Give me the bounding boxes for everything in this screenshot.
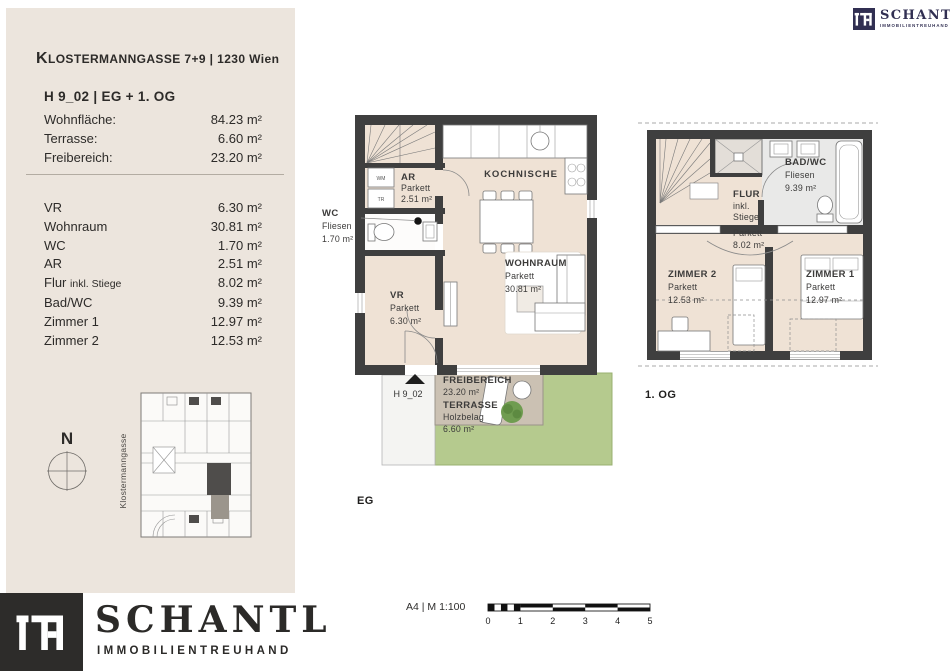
room-row: AR2.51 m² xyxy=(44,255,262,274)
summary-label: Wohnfläche: xyxy=(44,111,116,130)
svg-text:23.20 m²: 23.20 m² xyxy=(443,387,479,397)
room-row: VR6.30 m² xyxy=(44,199,262,218)
unit-number-label: H 9_02 xyxy=(393,389,422,399)
svg-text:Parkett: Parkett xyxy=(806,282,836,292)
room-label: Flur xyxy=(44,275,66,290)
summary-value: 84.23 m² xyxy=(211,111,262,130)
room-row: Zimmer 112.97 m² xyxy=(44,313,262,332)
svg-text:ZIMMER 2: ZIMMER 2 xyxy=(668,269,717,280)
sofa-chaise xyxy=(535,303,585,331)
bath-sink xyxy=(797,141,819,157)
area-summary: Wohnfläche: 84.23 m² Terrasse: 6.60 m² F… xyxy=(44,111,262,167)
company-name: SCHANTL xyxy=(880,8,950,23)
scale-tick: 1 xyxy=(518,616,523,626)
summary-value: 23.20 m² xyxy=(211,149,262,168)
cooktop xyxy=(565,158,587,194)
svg-text:8.02 m²: 8.02 m² xyxy=(733,240,764,250)
svg-text:Fliesen: Fliesen xyxy=(322,221,352,231)
scale-label: A4 | M 1:100 xyxy=(406,601,465,613)
svg-text:WC: WC xyxy=(322,208,339,219)
svg-text:FREIBEREICH: FREIBEREICH xyxy=(443,375,512,386)
tr-label: TR xyxy=(378,197,385,203)
room-value: 12.97 m² xyxy=(211,313,262,332)
room-label: VR xyxy=(44,200,62,215)
svg-text:ZIMMER 1: ZIMMER 1 xyxy=(806,269,855,280)
svg-text:TERRASSE: TERRASSE xyxy=(443,400,498,411)
svg-text:WOHNRAUM: WOHNRAUM xyxy=(505,258,567,269)
company-logo-top: SCHANTL IMMOBILIENTREUHAND xyxy=(853,8,950,30)
svg-text:Stiege: Stiege xyxy=(733,212,759,222)
svg-text:Parkett: Parkett xyxy=(390,303,420,313)
room-value: 9.39 m² xyxy=(218,294,262,313)
summary-row: Terrasse: 6.60 m² xyxy=(44,130,262,149)
room-row: WC1.70 m² xyxy=(44,237,262,256)
toilet xyxy=(374,224,394,241)
kochnische-label: KOCHNISCHE xyxy=(484,169,558,180)
svg-text:BAD/WC: BAD/WC xyxy=(785,157,826,168)
eg-floor-label: EG xyxy=(357,495,374,507)
svg-text:Holzbelag: Holzbelag xyxy=(443,412,484,422)
terrace-door-opening xyxy=(457,365,540,375)
room-row: Flur inkl. Stiege8.02 m² xyxy=(44,274,262,294)
svg-text:2.51 m²: 2.51 m² xyxy=(401,194,432,204)
room-value: 2.51 m² xyxy=(218,255,262,274)
info-sidebar: KLOSTERMANNGASSE 7+9 | 1230 Wien H 9_02 … xyxy=(6,8,295,593)
wm-label: WM xyxy=(377,176,386,182)
company-subtitle: IMMOBILIENTREUHAND xyxy=(880,23,950,28)
ith-mark-icon-footer xyxy=(0,593,83,671)
entry-door-opening xyxy=(405,365,437,375)
window xyxy=(680,352,730,360)
summary-row: Freibereich: 23.20 m² xyxy=(44,149,262,168)
dining-table xyxy=(480,200,533,243)
toilet-og xyxy=(818,196,833,214)
floorplan-sheet: KLOSTERMANNGASSE 7+9 | 1230 Wien H 9_02 … xyxy=(0,0,950,671)
svg-text:6.60 m²: 6.60 m² xyxy=(443,424,474,434)
floorplan-og: BAD/WC Fliesen 9.39 m² FLUR inkl. Stiege… xyxy=(630,105,950,405)
svg-text:Fliesen: Fliesen xyxy=(785,170,815,180)
summary-value: 6.60 m² xyxy=(218,130,262,149)
room-value: 12.53 m² xyxy=(211,332,262,351)
window xyxy=(587,200,597,218)
label-dot xyxy=(414,217,422,225)
desk xyxy=(658,331,710,351)
scale-tick: 5 xyxy=(647,616,652,626)
scale-tick: 3 xyxy=(583,616,588,626)
room-row: Wohnraum30.81 m² xyxy=(44,218,262,237)
wc-room-label: WC Fliesen 1.70 m² xyxy=(322,208,353,244)
room-label-sub: inkl. Stiege xyxy=(70,278,121,290)
svg-text:Parkett: Parkett xyxy=(668,282,698,292)
divider xyxy=(26,174,284,175)
kitchen-sink xyxy=(531,132,549,150)
room-label: Wohnraum xyxy=(44,219,107,234)
compass-north-label: N xyxy=(61,429,73,448)
scale-tick: 4 xyxy=(615,616,620,626)
scale-tick: 2 xyxy=(550,616,555,626)
room-label: AR xyxy=(44,256,62,271)
company-name-footer: SCHANTL xyxy=(95,600,332,640)
street-name: Klostermanngasse xyxy=(118,426,128,516)
svg-text:Parkett: Parkett xyxy=(505,271,535,281)
title-initial: K xyxy=(36,50,48,67)
svg-text:VR: VR xyxy=(390,290,404,301)
svg-text:12.53 m²: 12.53 m² xyxy=(668,295,704,305)
summary-label: Terrasse: xyxy=(44,130,97,149)
svg-text:inkl.: inkl. xyxy=(733,201,750,211)
summary-row: Wohnfläche: 84.23 m² xyxy=(44,111,262,130)
og-floor-label: 1. OG xyxy=(645,389,676,401)
room-value: 30.81 m² xyxy=(211,218,262,237)
svg-text:1.70 m²: 1.70 m² xyxy=(322,234,353,244)
room-list: VR6.30 m² Wohnraum30.81 m² WC1.70 m² AR2… xyxy=(44,199,262,350)
svg-text:FLUR: FLUR xyxy=(733,189,760,200)
svg-text:AR: AR xyxy=(401,172,416,183)
room-label: Bad/WC xyxy=(44,295,92,310)
niche xyxy=(656,226,720,233)
floorplan-eg: WM TR AR Parkett 2.51 m² WC Fliesen 1.70… xyxy=(315,100,630,520)
room-label: WC xyxy=(44,238,66,253)
bathtub xyxy=(836,141,862,223)
room-row: Bad/WC9.39 m² xyxy=(44,294,262,313)
bath-sink xyxy=(770,141,792,157)
svg-text:6.30 m²: 6.30 m² xyxy=(390,316,421,326)
scale-tick: 0 xyxy=(485,616,490,626)
garden-table xyxy=(513,381,531,399)
svg-text:Parkett: Parkett xyxy=(401,183,431,193)
room-value: 6.30 m² xyxy=(218,199,262,218)
compass: N xyxy=(36,426,98,498)
room-label: Zimmer 1 xyxy=(44,314,99,329)
site-plan xyxy=(133,391,260,541)
ith-mark-icon xyxy=(853,8,875,30)
window xyxy=(790,352,840,360)
room-value: 1.70 m² xyxy=(218,237,262,256)
company-subtitle-footer: IMMOBILIENTREUHAND xyxy=(97,645,292,657)
svg-text:12.97 m²: 12.97 m² xyxy=(806,295,842,305)
window xyxy=(355,293,365,313)
project-title: KLOSTERMANNGASSE 7+9 | 1230 Wien xyxy=(36,50,279,68)
svg-text:Parkett: Parkett xyxy=(733,228,763,238)
title-text: LOSTERMANNGASSE 7+9 | 1230 Wien xyxy=(48,52,279,66)
niche xyxy=(778,226,847,233)
room-value: 8.02 m² xyxy=(218,274,262,294)
desk-chair xyxy=(672,317,688,331)
bed-single xyxy=(733,265,765,345)
room-label: Zimmer 2 xyxy=(44,333,99,348)
svg-text:30.81 m²: 30.81 m² xyxy=(505,284,541,294)
svg-text:9.39 m²: 9.39 m² xyxy=(785,183,816,193)
summary-label: Freibereich: xyxy=(44,149,113,168)
site-plan-highlighted-unit xyxy=(207,463,231,495)
scale-bar: 0 1 2 3 4 5 xyxy=(480,596,660,630)
room-row: Zimmer 212.53 m² xyxy=(44,332,262,351)
unit-title: H 9_02 | EG + 1. OG xyxy=(44,89,175,104)
kitchen-counter xyxy=(443,125,587,158)
